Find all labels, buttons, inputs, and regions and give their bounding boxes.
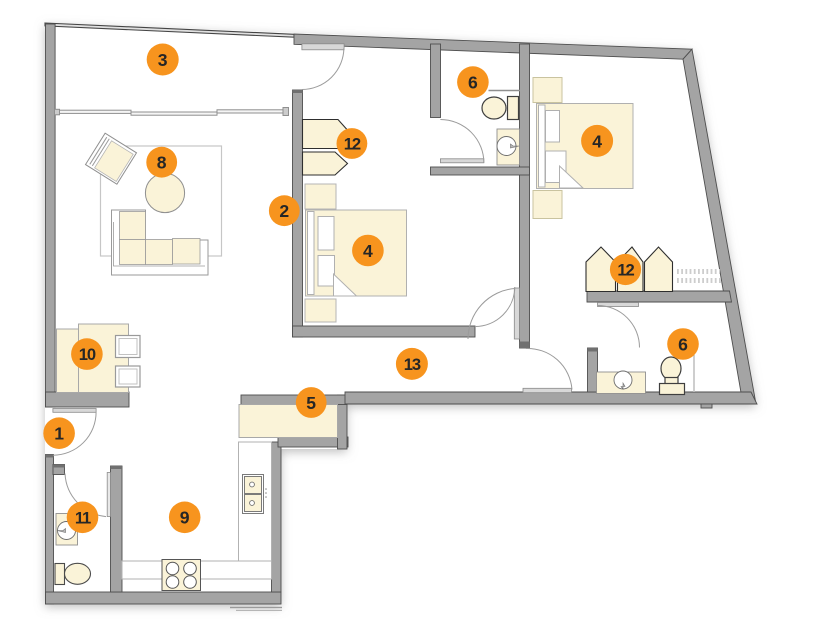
svg-text:1: 1 (54, 424, 64, 444)
svg-text:9: 9 (180, 508, 190, 528)
svg-text:11: 11 (75, 508, 91, 527)
svg-text:13: 13 (404, 355, 421, 374)
svg-text:5: 5 (306, 393, 316, 413)
svg-text:8: 8 (157, 153, 167, 173)
svg-text:6: 6 (678, 334, 688, 354)
svg-text:2: 2 (279, 201, 289, 221)
svg-text:10: 10 (79, 345, 96, 364)
svg-text:12: 12 (617, 261, 634, 280)
svg-text:4: 4 (592, 131, 602, 151)
svg-text:12: 12 (344, 135, 361, 154)
svg-text:6: 6 (468, 73, 478, 93)
svg-text:3: 3 (158, 50, 168, 70)
svg-text:4: 4 (363, 241, 373, 261)
